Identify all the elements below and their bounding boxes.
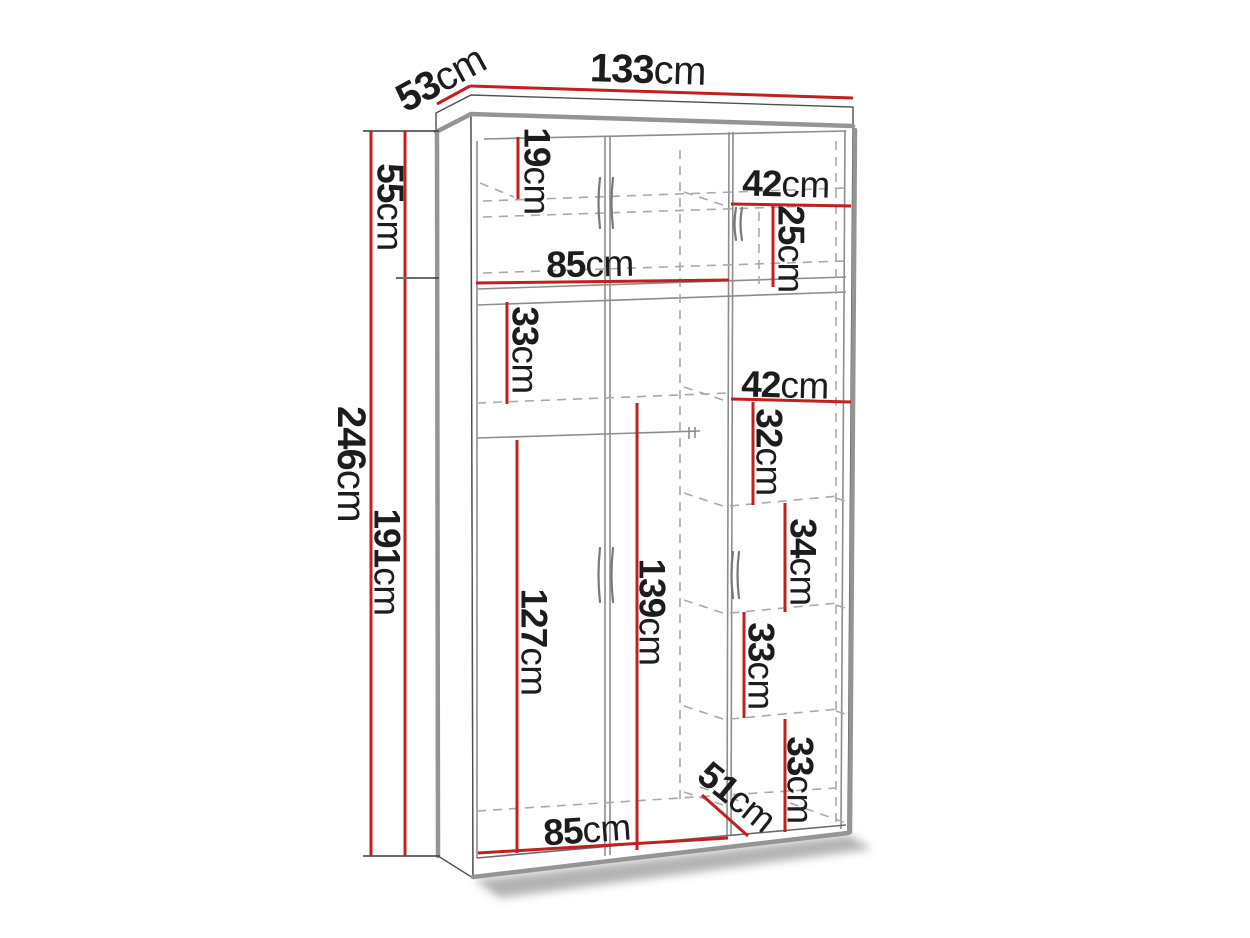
dim-value: 85	[542, 810, 584, 854]
dim-label-33cm-left: 33cm	[507, 306, 544, 393]
dim-unit: cm	[517, 166, 558, 214]
dim-value: 33	[741, 622, 782, 661]
dim-unit: cm	[653, 48, 707, 94]
dim-unit: cm	[505, 345, 546, 393]
dim-unit: cm	[632, 617, 673, 665]
dim-label-42cm-mid: 42cm	[741, 365, 829, 404]
dim-unit: cm	[780, 775, 821, 823]
left-back-edge	[437, 133, 438, 856]
cabinet-left-face	[436, 114, 473, 878]
dim-value: 33	[505, 306, 546, 345]
dim-label-25cm: 25cm	[773, 205, 810, 292]
dim-value: 34	[783, 518, 824, 557]
dim-label-55cm: 55cm	[372, 163, 409, 250]
dim-value: 139	[632, 558, 673, 617]
dim-unit: cm	[367, 567, 408, 615]
dim-value: 191	[367, 508, 408, 567]
dim-unit: cm	[581, 806, 632, 850]
dim-value: 33	[780, 736, 821, 775]
dim-label-32cm: 32cm	[751, 408, 788, 495]
dim-value: 133	[589, 46, 654, 92]
dim-label-85cm-top: 85cm	[546, 245, 634, 284]
dim-unit: cm	[771, 244, 812, 292]
dim-label-191cm: 191cm	[369, 508, 406, 615]
dim-value: 55	[370, 163, 411, 202]
dim-value: 42	[742, 162, 782, 204]
dim-unit: cm	[585, 243, 634, 285]
dim-value: 127	[514, 588, 555, 647]
dim-label-34cm: 34cm	[785, 518, 822, 605]
dim-unit: cm	[514, 647, 555, 695]
dim-unit: cm	[780, 364, 829, 406]
dim-label-33cm-right-lower: 33cm	[782, 736, 819, 823]
dim-label-85cm-bottom: 85cm	[542, 808, 632, 851]
dim-value: 42	[741, 363, 781, 405]
dim-unit: cm	[781, 163, 830, 205]
dim-value: 25	[771, 205, 812, 244]
dim-label-139cm: 139cm	[634, 558, 671, 665]
dim-label-127cm: 127cm	[516, 588, 553, 695]
dim-label-33cm-right-upper: 33cm	[743, 622, 780, 709]
dim-unit: cm	[741, 661, 782, 709]
dim-value: 19	[517, 127, 558, 166]
dim-unit: cm	[370, 202, 411, 250]
dim-unit: cm	[783, 557, 824, 605]
dim-value: 246	[329, 406, 373, 470]
dim-value: 32	[749, 408, 790, 447]
dim-label-42cm-top: 42cm	[742, 164, 830, 203]
wardrobe-line-drawing	[0, 0, 1250, 938]
dim-label-19cm: 19cm	[519, 127, 556, 214]
wardrobe-dimension-diagram: 53cm 133cm 19cm 42cm 25cm 85cm 55cm 33cm…	[0, 0, 1250, 938]
dim-value: 85	[546, 244, 586, 286]
dim-label-246cm: 246cm	[331, 406, 371, 522]
dim-label-133cm: 133cm	[589, 48, 706, 92]
dim-unit: cm	[749, 447, 790, 495]
